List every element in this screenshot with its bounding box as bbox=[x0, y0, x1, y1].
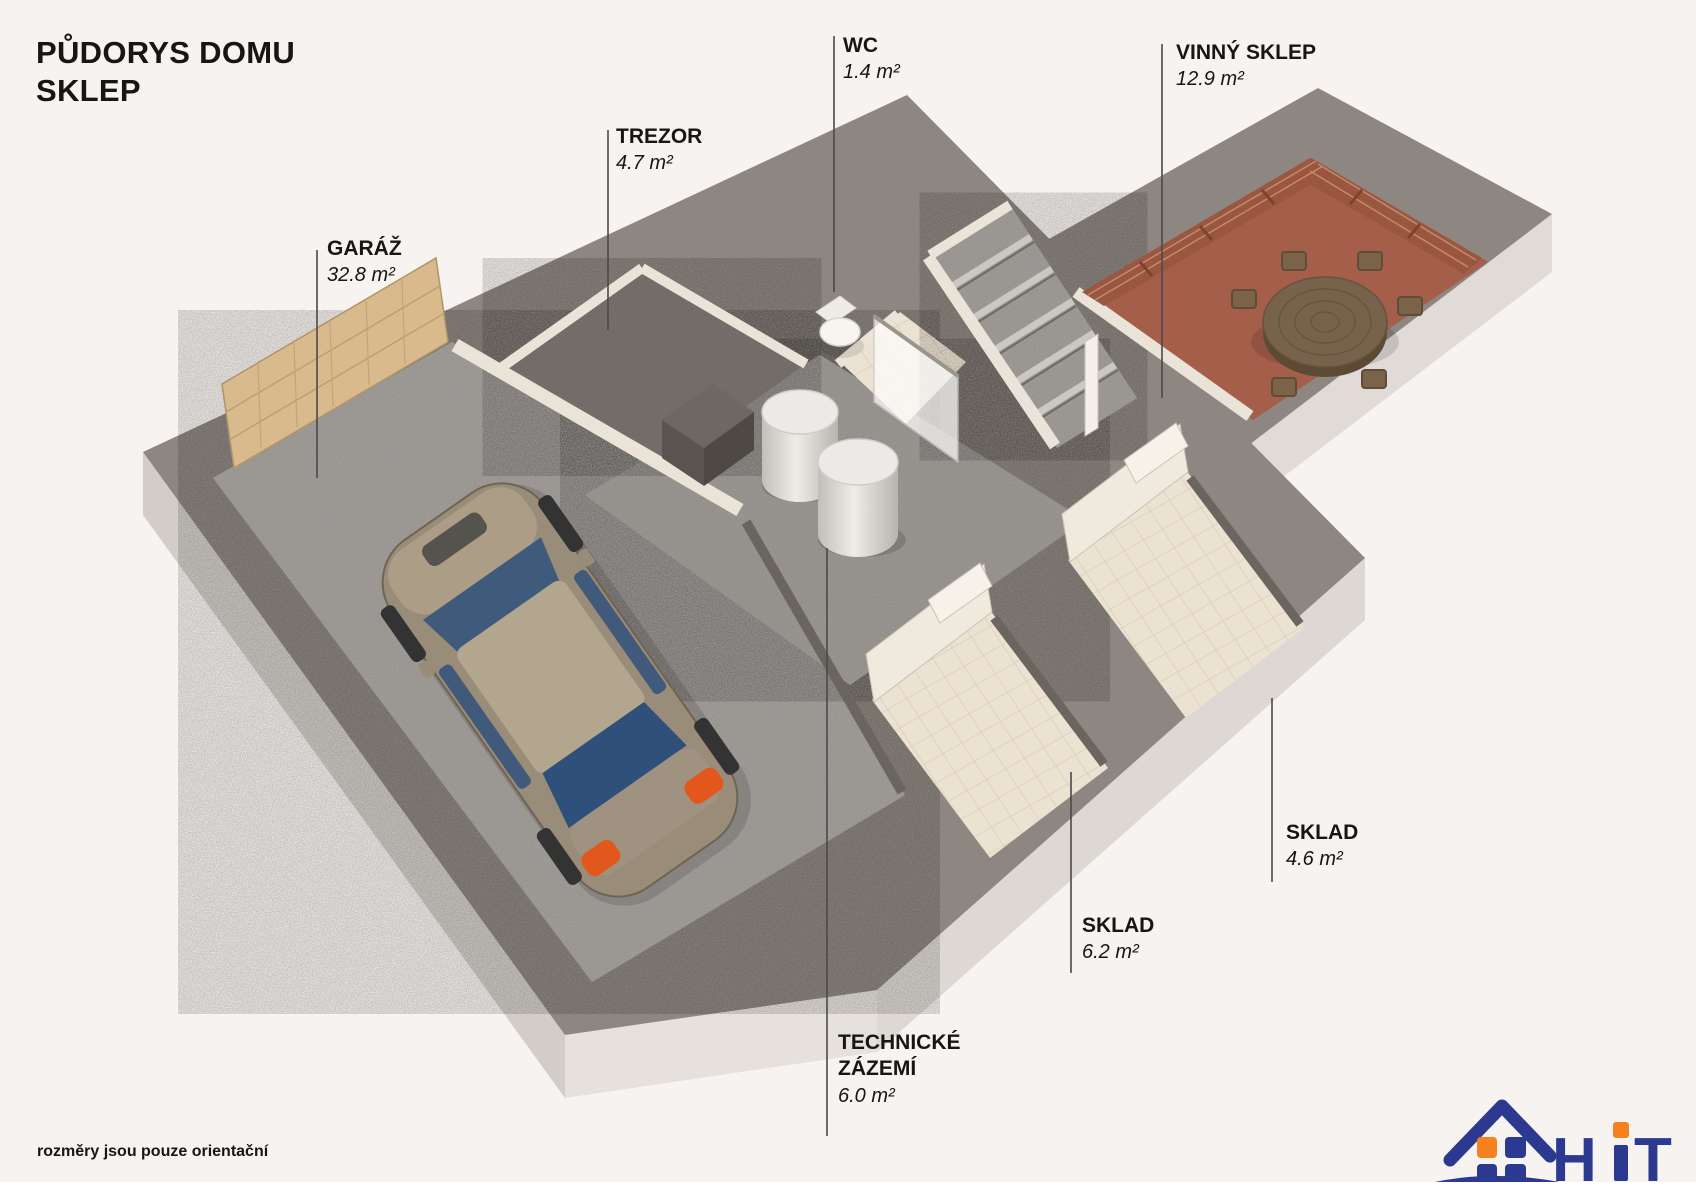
room-name: GARÁŽ bbox=[327, 236, 402, 262]
room-name: TREZOR bbox=[616, 124, 702, 150]
room-label-technicke-zazemi: TECHNICKÉ ZÁZEMÍ 6.0 m² bbox=[838, 1030, 961, 1109]
room-label-wc: WC 1.4 m² bbox=[843, 33, 900, 85]
room-area: 1.4 m² bbox=[843, 60, 900, 85]
room-name-line2: ZÁZEMÍ bbox=[838, 1056, 961, 1082]
page-title-line2: SKLEP bbox=[36, 72, 295, 110]
floorplan-page: H T REALITY PŮDORYS DOMU SKLEP GARÁŽ 32.… bbox=[0, 0, 1696, 1200]
room-area: 12.9 m² bbox=[1176, 67, 1316, 92]
disclaimer-text: rozměry jsou pouze orientační bbox=[37, 1143, 268, 1161]
room-area: 4.7 m² bbox=[616, 151, 702, 176]
floorplan-3d-render: H T REALITY bbox=[0, 0, 1696, 1200]
room-area: 6.2 m² bbox=[1082, 940, 1154, 965]
page-title: PŮDORYS DOMU SKLEP bbox=[36, 34, 295, 110]
room-name: SKLAD bbox=[1082, 913, 1154, 939]
logo-house-roof bbox=[1450, 1106, 1550, 1160]
room-name: VINNÝ SKLEP bbox=[1176, 40, 1316, 66]
room-label-vinny-sklep: VINNÝ SKLEP 12.9 m² bbox=[1176, 40, 1316, 92]
logo-letter-i bbox=[1613, 1122, 1629, 1181]
room-name: WC bbox=[843, 33, 900, 59]
winecellar-door bbox=[1085, 334, 1098, 436]
room-label-trezor: TREZOR 4.7 m² bbox=[616, 124, 702, 176]
logo-window-orange bbox=[1477, 1137, 1497, 1158]
room-label-sklad-4-6: SKLAD 4.6 m² bbox=[1286, 820, 1358, 872]
room-label-sklad-6-2: SKLAD 6.2 m² bbox=[1082, 913, 1154, 965]
bottom-white-strip bbox=[0, 1182, 1696, 1200]
room-area: 6.0 m² bbox=[838, 1084, 961, 1109]
room-name: TECHNICKÉ bbox=[838, 1030, 961, 1056]
room-area: 32.8 m² bbox=[327, 263, 402, 288]
page-title-line1: PŮDORYS DOMU bbox=[36, 34, 295, 72]
room-label-garaz: GARÁŽ 32.8 m² bbox=[327, 236, 402, 288]
logo-window bbox=[1505, 1137, 1526, 1158]
room-area: 4.6 m² bbox=[1286, 847, 1358, 872]
room-name: SKLAD bbox=[1286, 820, 1358, 846]
